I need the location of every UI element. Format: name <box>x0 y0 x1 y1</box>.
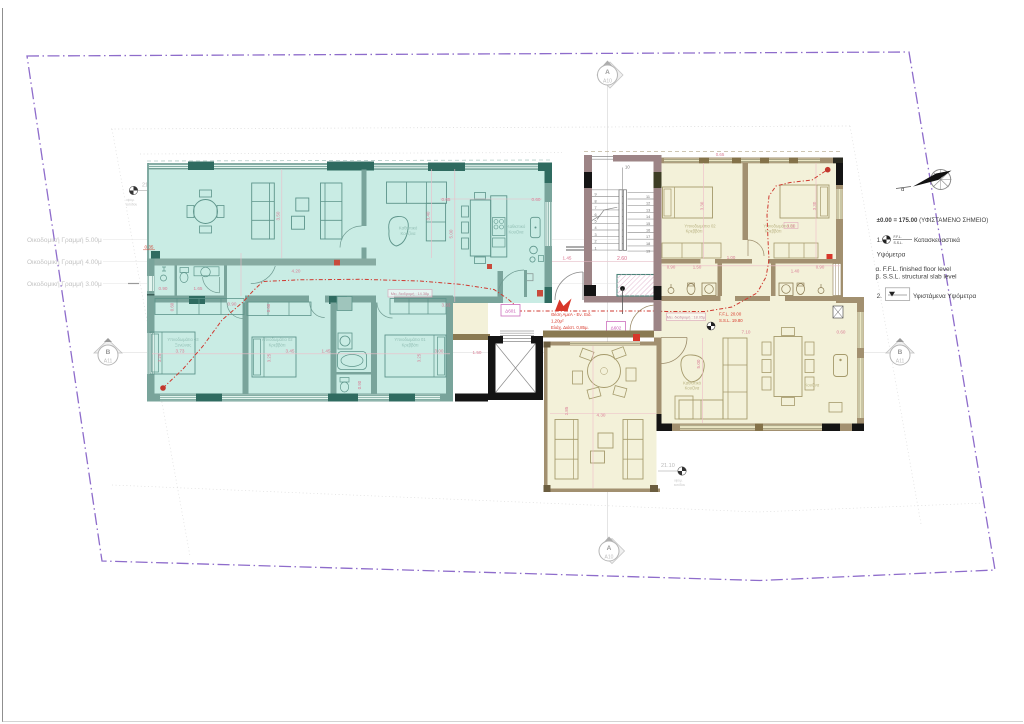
svg-text:Θέση ΑμεΑ - Εν. Ειδ.: Θέση ΑμεΑ - Εν. Ειδ. <box>551 312 592 317</box>
svg-text:Ελάχ. Διάστ. 0,85μ.: Ελάχ. Διάστ. 0,85μ. <box>551 325 589 330</box>
svg-text:B: B <box>898 349 903 356</box>
svg-text:21.10: 21.10 <box>661 463 675 469</box>
svg-text:Κρεββάτι: Κρεββάτι <box>402 343 419 348</box>
svg-text:Μει. διαδρομή : 18.05μ: Μει. διαδρομή : 18.05μ <box>667 315 706 319</box>
svg-text:2.: 2. <box>877 293 883 300</box>
svg-text:Καθιστικό: Καθιστικό <box>507 224 526 229</box>
svg-text:3.85: 3.85 <box>564 406 569 415</box>
svg-text:Μει. διαδρομή : 14.38μ: Μει. διαδρομή : 14.38μ <box>391 292 430 296</box>
svg-text:5.00: 5.00 <box>696 359 701 368</box>
svg-text:F.F.L. 20.00: F.F.L. 20.00 <box>719 312 742 317</box>
svg-text:Δ601: Δ601 <box>505 309 516 314</box>
svg-text:A11: A11 <box>104 359 113 365</box>
svg-text:A: A <box>607 545 612 552</box>
svg-text:0.65: 0.65 <box>716 152 725 157</box>
svg-text:15: 15 <box>646 222 650 226</box>
svg-text:6: 6 <box>595 213 597 217</box>
svg-text:Κρεββάτι: Κρεββάτι <box>269 343 286 348</box>
svg-text:0.60: 0.60 <box>170 302 175 311</box>
svg-text:0.90: 0.90 <box>816 264 825 269</box>
svg-text:Υφιστάμενα Υψόμετρα: Υφιστάμενα Υψόμετρα <box>913 292 976 300</box>
svg-text:18: 18 <box>646 242 650 246</box>
svg-text:0.35: 0.35 <box>145 245 154 250</box>
svg-text:0.60: 0.60 <box>532 197 541 202</box>
svg-text:±0.00 = 175.00 (ΥΦΙΣΤΑΜΕΝΟ ΣΗΜ: ±0.00 = 175.00 (ΥΦΙΣΤΑΜΕΝΟ ΣΗΜΕΙΟ) <box>877 217 989 224</box>
svg-text:A10: A10 <box>603 79 612 85</box>
svg-text:0.65: 0.65 <box>442 197 451 202</box>
svg-text:0.90: 0.90 <box>228 302 237 307</box>
svg-text:Οικοδομική Γραμμή 4.00μ: Οικοδομική Γραμμή 4.00μ <box>27 259 102 266</box>
svg-text:0.90: 0.90 <box>667 264 676 269</box>
svg-text:1.00: 1.00 <box>727 255 736 260</box>
svg-text:2: 2 <box>595 240 597 244</box>
svg-text:Κρεββάτι: Κρεββάτι <box>686 229 703 234</box>
svg-text:Κουζίνα: Κουζίνα <box>685 386 700 391</box>
svg-text:1,20μ²: 1,20μ² <box>551 319 564 324</box>
svg-text:Καθιστικό: Καθιστικό <box>399 226 418 231</box>
svg-text:Υψόμετρα: Υψόμετρα <box>877 251 906 259</box>
svg-text:3.00: 3.00 <box>435 349 444 354</box>
svg-text:Δ602: Δ602 <box>611 326 622 331</box>
svg-text:0.60: 0.60 <box>837 330 846 335</box>
svg-text:A10: A10 <box>605 555 614 561</box>
svg-text:Κουζίνα: Κουζίνα <box>805 383 820 388</box>
svg-text:3.45: 3.45 <box>286 349 295 354</box>
svg-text:11: 11 <box>646 195 650 199</box>
svg-text:Υπνοδωμάτιο 01: Υπνοδωμάτιο 01 <box>394 337 426 342</box>
svg-text:3.25: 3.25 <box>417 353 422 362</box>
svg-text:2.60: 2.60 <box>617 256 627 262</box>
svg-text:14: 14 <box>646 215 650 219</box>
svg-text:3.93: 3.93 <box>442 303 451 308</box>
svg-text:1.65: 1.65 <box>194 286 203 291</box>
svg-text:1: 1 <box>595 247 597 251</box>
svg-text:5: 5 <box>595 220 597 224</box>
svg-text:12: 12 <box>646 202 650 206</box>
svg-text:Οικοδομική Γραμμή 3.00μ: Οικοδομική Γραμμή 3.00μ <box>27 281 102 288</box>
svg-text:Κουζίνα: Κουζίνα <box>508 230 524 235</box>
svg-text:B: B <box>106 349 111 356</box>
svg-text:Υπνοδωμάτιο 02: Υπνοδωμάτιο 02 <box>261 337 293 342</box>
svg-text:4.20: 4.20 <box>292 269 301 274</box>
svg-text:εισόδου: εισόδου <box>126 203 137 207</box>
svg-text:α. F.F.L. finished floor level: α. F.F.L. finished floor level <box>876 266 951 273</box>
svg-text:10: 10 <box>625 165 630 170</box>
svg-text:3.73: 3.73 <box>176 349 185 354</box>
svg-text:3.40: 3.40 <box>426 211 431 220</box>
svg-text:0.90: 0.90 <box>357 380 362 389</box>
svg-text:0.60: 0.60 <box>266 303 271 312</box>
svg-text:19: 19 <box>646 250 650 254</box>
svg-text:υψόμ.: υψόμ. <box>126 198 135 202</box>
svg-text:Οικοδομική Γραμμή 5.00μ: Οικοδομική Γραμμή 5.00μ <box>27 237 102 244</box>
svg-text:9: 9 <box>595 193 597 197</box>
svg-text:1.50: 1.50 <box>473 350 482 355</box>
svg-text:1.45: 1.45 <box>322 349 331 354</box>
svg-text:1.45: 1.45 <box>563 256 572 261</box>
svg-text:A11: A11 <box>896 359 905 365</box>
svg-text:3.30: 3.30 <box>787 223 796 228</box>
svg-text:3.25: 3.25 <box>267 353 272 362</box>
svg-text:β. S.S.L. structural slab leve: β. S.S.L. structural slab level <box>876 273 957 280</box>
svg-text:7.10: 7.10 <box>742 330 751 335</box>
svg-text:16: 16 <box>646 229 650 233</box>
svg-text:1.50: 1.50 <box>693 264 702 269</box>
svg-text:3: 3 <box>595 233 597 237</box>
svg-text:Κουζίνα: Κουζίνα <box>400 231 416 236</box>
svg-text:F.F.L.: F.F.L. <box>894 235 902 239</box>
svg-text:A: A <box>605 69 610 76</box>
svg-text:S.S.L. 19.80: S.S.L. 19.80 <box>719 318 743 323</box>
svg-text:S.S.L.: S.S.L. <box>894 241 903 245</box>
svg-text:3.50: 3.50 <box>276 211 281 220</box>
svg-text:Κατασκευαστικά: Κατασκευαστικά <box>914 236 960 244</box>
svg-text:8: 8 <box>595 199 597 203</box>
svg-text:7: 7 <box>595 206 597 210</box>
svg-text:3.25: 3.25 <box>157 353 162 362</box>
svg-text:1.: 1. <box>877 237 883 244</box>
svg-text:Ξενώνας: Ξενώνας <box>175 343 191 348</box>
svg-text:0.90: 0.90 <box>159 286 168 291</box>
svg-text:17: 17 <box>646 235 650 239</box>
svg-text:εισόδου: εισόδου <box>674 483 685 487</box>
svg-text:4: 4 <box>595 226 597 230</box>
svg-text:1.40: 1.40 <box>791 269 800 274</box>
svg-text:5.00: 5.00 <box>449 229 454 238</box>
svg-text:Υπνοδωμάτιο 03: Υπνοδωμάτιο 03 <box>167 337 199 342</box>
svg-text:υψόμ.: υψόμ. <box>674 479 683 483</box>
svg-text:13: 13 <box>646 208 650 212</box>
